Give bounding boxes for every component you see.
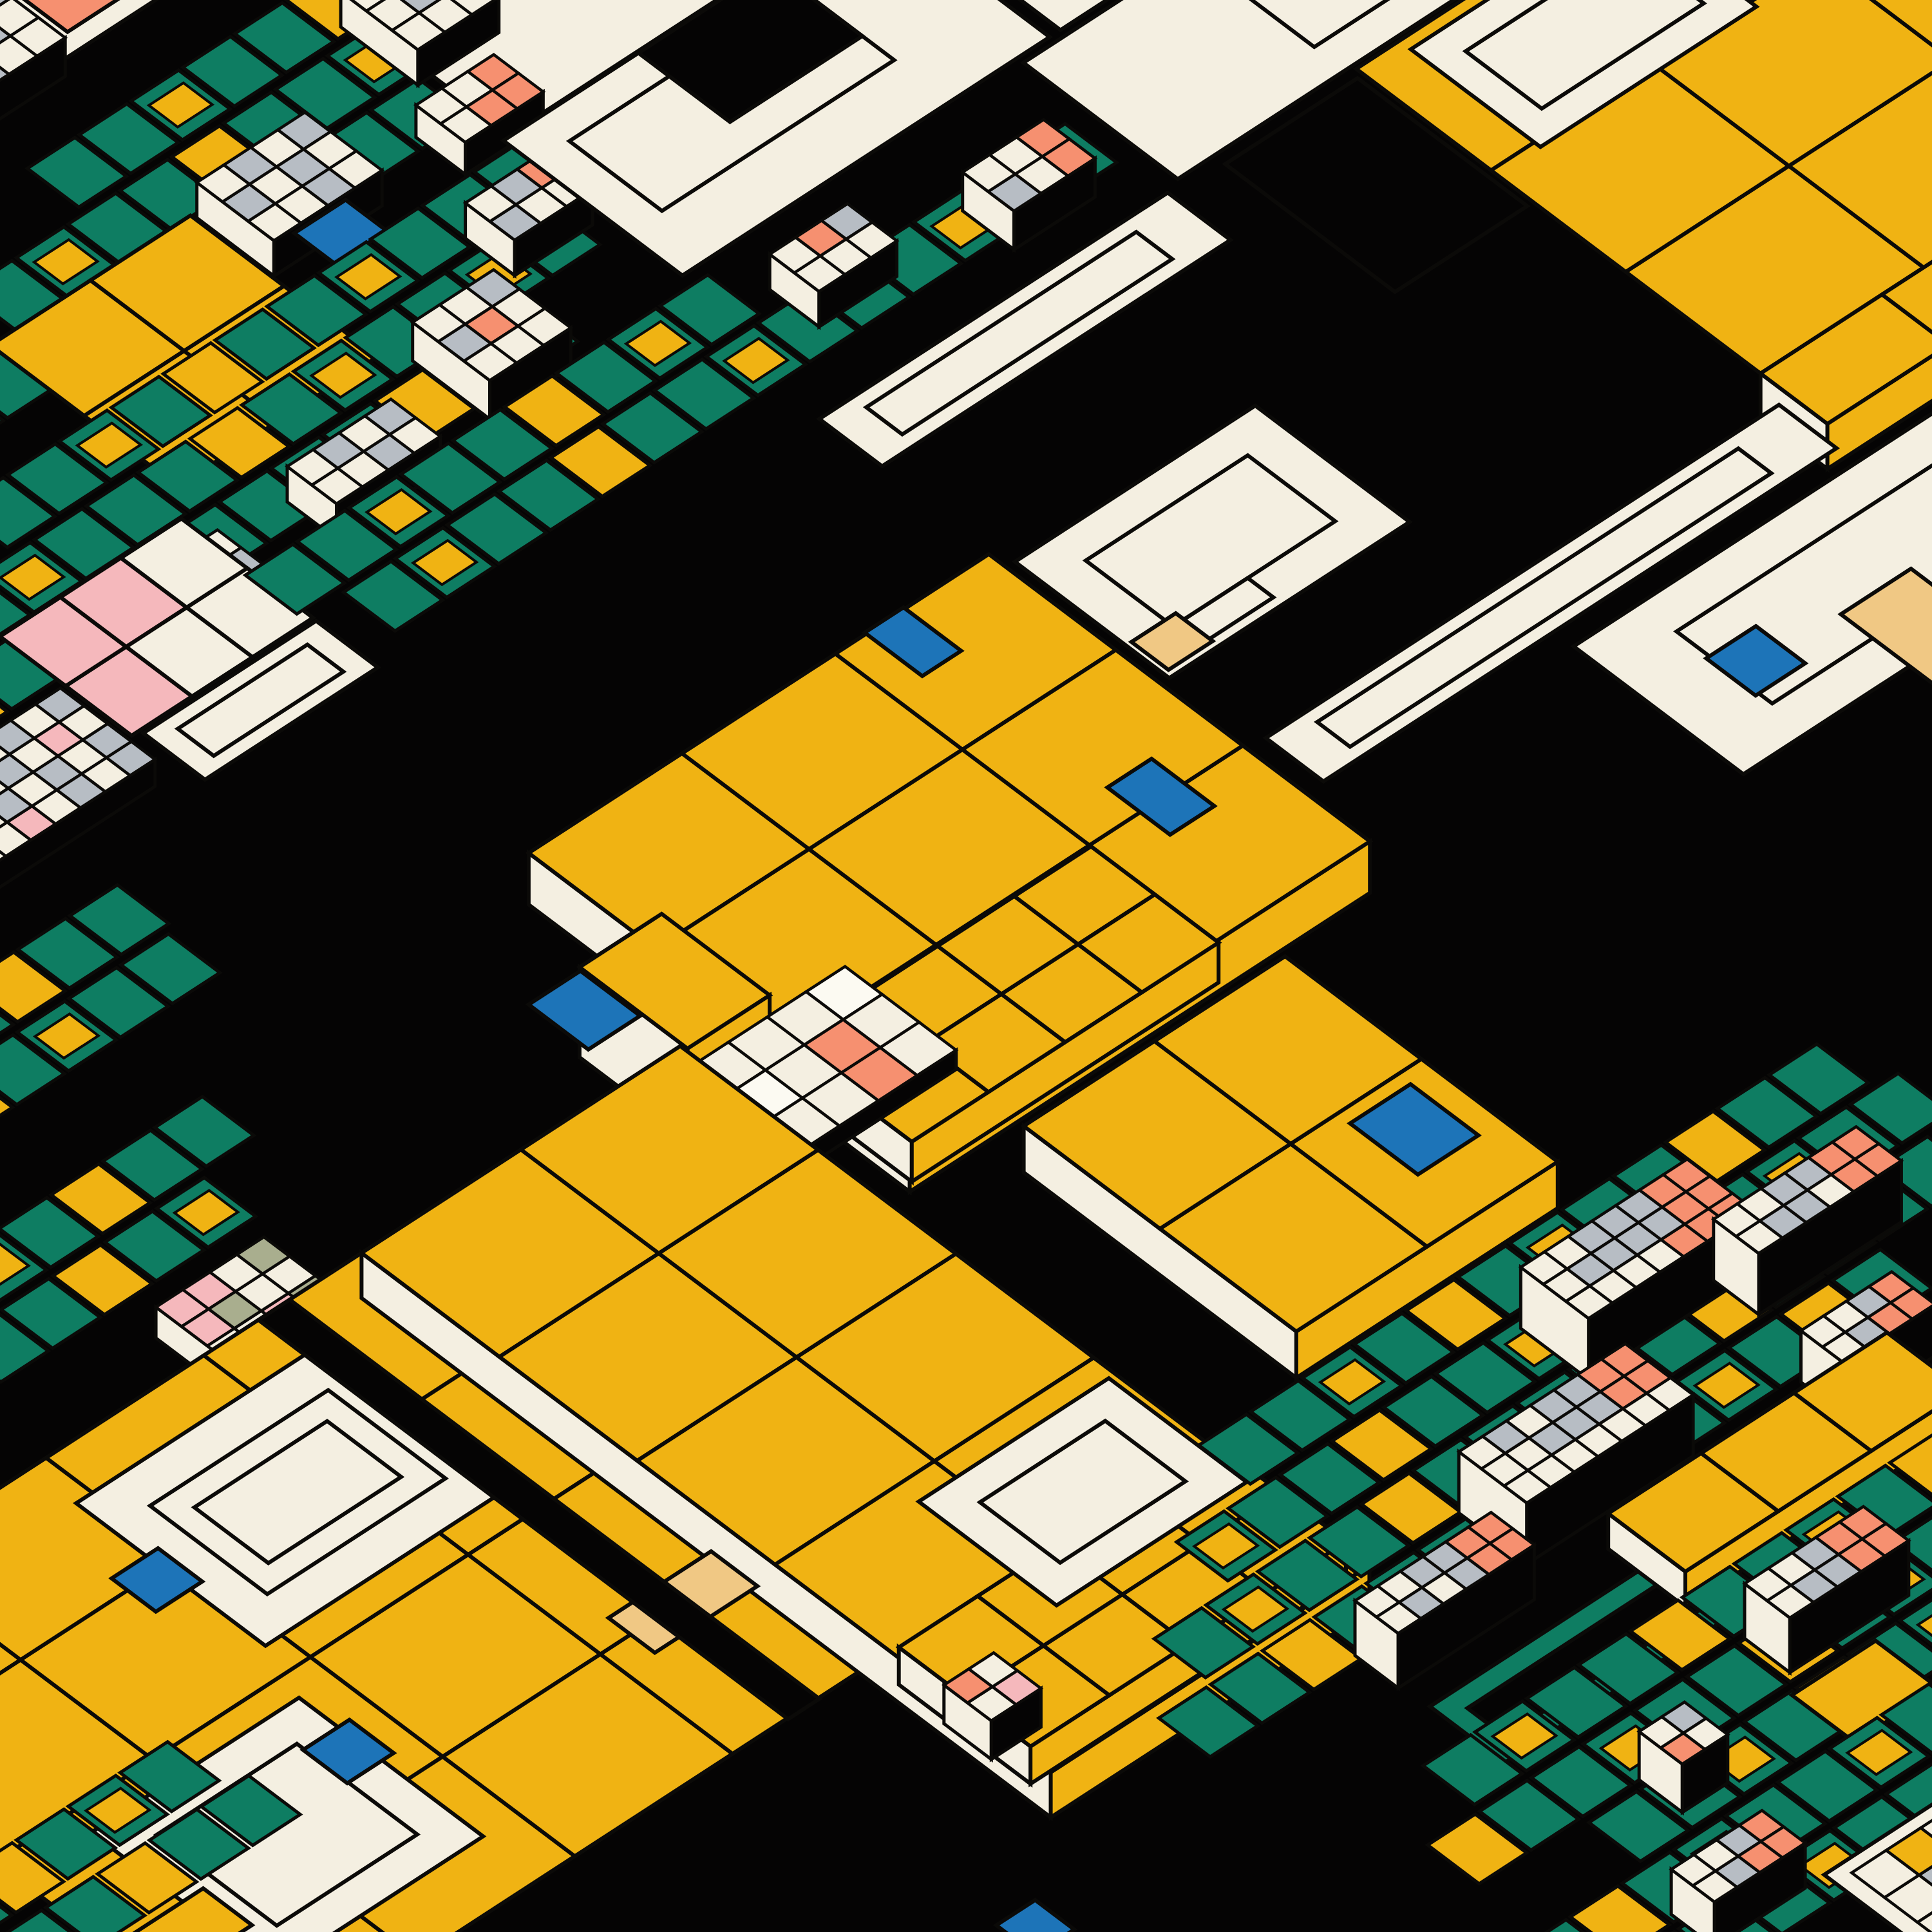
artwork-canvas xyxy=(0,0,1932,1932)
generative-artwork xyxy=(0,0,1932,1932)
